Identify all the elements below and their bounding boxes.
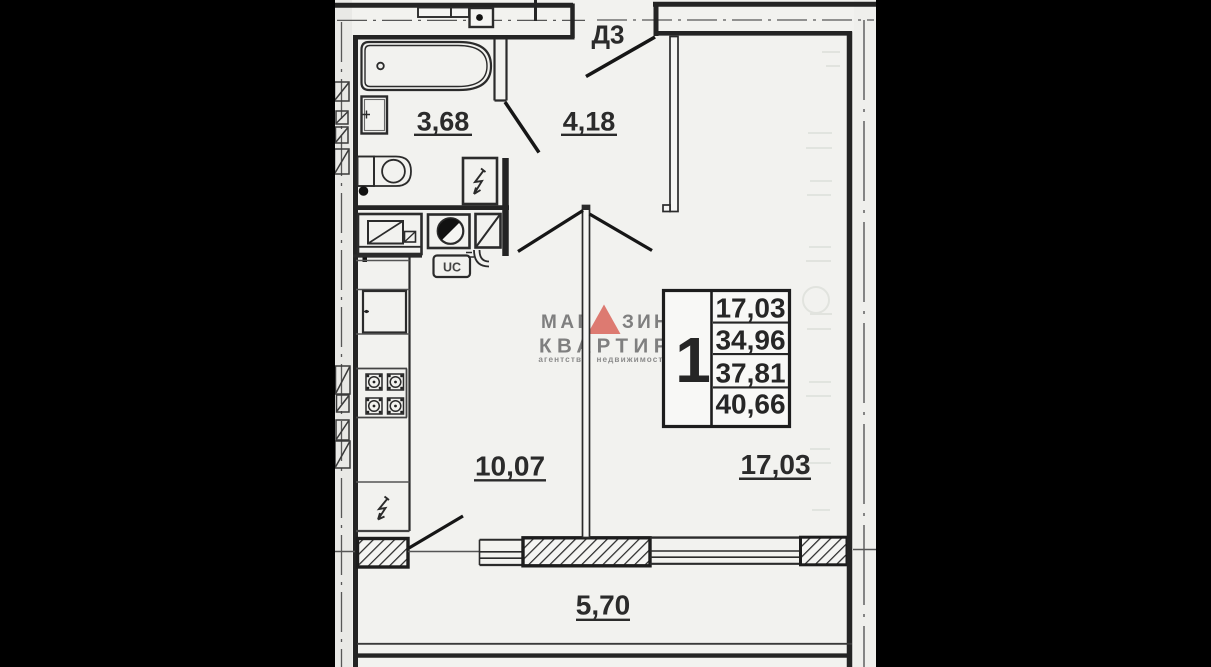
svg-text:40,66: 40,66: [715, 389, 785, 420]
svg-text:Д3: Д3: [592, 20, 625, 50]
svg-text:3,68: 3,68: [417, 107, 470, 137]
svg-text:агентство недвижимости: агентство недвижимости: [538, 355, 669, 364]
svg-text:17,03: 17,03: [715, 293, 785, 324]
svg-text:5,70: 5,70: [576, 590, 631, 621]
svg-text:34,96: 34,96: [715, 325, 785, 356]
svg-text:17,03: 17,03: [740, 449, 810, 480]
svg-text:UC: UC: [443, 261, 461, 275]
svg-text:10,07: 10,07: [475, 451, 545, 482]
svg-text:4,18: 4,18: [563, 107, 616, 137]
svg-text:37,81: 37,81: [715, 358, 785, 389]
svg-text:1: 1: [675, 324, 711, 396]
